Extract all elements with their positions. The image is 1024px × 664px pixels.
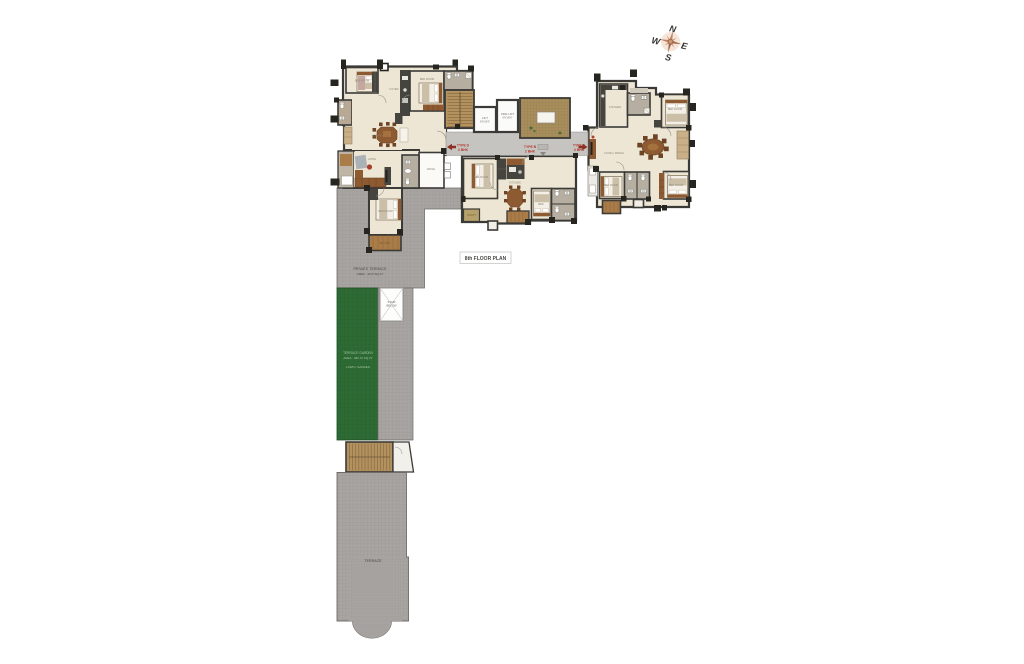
svg-text:TERRACE: TERRACE: [364, 559, 382, 563]
svg-text:3 BHK: 3 BHK: [458, 148, 469, 152]
svg-text:BED ROOM: BED ROOM: [420, 77, 434, 81]
svg-text:BELOW: BELOW: [386, 304, 396, 308]
svg-text:LAWN / GARDEN: LAWN / GARDEN: [346, 365, 370, 369]
svg-text:BED ROOM: BED ROOM: [378, 209, 392, 213]
svg-text:PRIVATE TERRACE: PRIVATE TERRACE: [354, 267, 388, 271]
svg-text:WASH: WASH: [427, 167, 435, 171]
svg-text:SIT OUT: SIT OUT: [380, 241, 391, 245]
svg-text:BED ROOM: BED ROOM: [668, 107, 682, 111]
svg-text:TERRACE GARDEN: TERRACE GARDEN: [343, 351, 373, 355]
svg-text:BED ROOM: BED ROOM: [669, 183, 683, 187]
svg-text:TYPE B: TYPE B: [524, 145, 537, 149]
svg-text:BED ROOM: BED ROOM: [474, 175, 488, 179]
svg-text:LIVING: LIVING: [368, 157, 377, 161]
svg-text:6'6"x8'6": 6'6"x8'6": [503, 116, 513, 120]
svg-text:KITCHEN: KITCHEN: [509, 181, 521, 185]
svg-text:6'6"x5'6": 6'6"x5'6": [480, 120, 490, 124]
svg-text:LIVING / DINING: LIVING / DINING: [604, 151, 624, 155]
svg-text:UTILITY: UTILITY: [467, 214, 477, 217]
svg-text:AREA : 1172 SQ.FT: AREA : 1172 SQ.FT: [357, 272, 384, 276]
svg-text:BED: BED: [538, 202, 543, 206]
svg-text:DINING: DINING: [373, 134, 382, 138]
svg-text:8th FLOOR PLAN: 8th FLOOR PLAN: [465, 256, 507, 262]
svg-text:LIFT: LIFT: [482, 116, 488, 120]
svg-text:KITCHEN: KITCHEN: [609, 105, 621, 109]
svg-text:BED ROOM: BED ROOM: [604, 183, 618, 187]
svg-text:TYPE D: TYPE D: [457, 144, 470, 148]
svg-text:AREA : 480.70 SQ.FT: AREA : 480.70 SQ.FT: [343, 356, 373, 360]
svg-text:2 BHK: 2 BHK: [525, 150, 536, 154]
svg-text:BED ROOM: BED ROOM: [355, 79, 369, 83]
svg-text:FOYER: FOYER: [390, 87, 399, 91]
svg-text:FIRE LIFT: FIRE LIFT: [501, 112, 515, 116]
